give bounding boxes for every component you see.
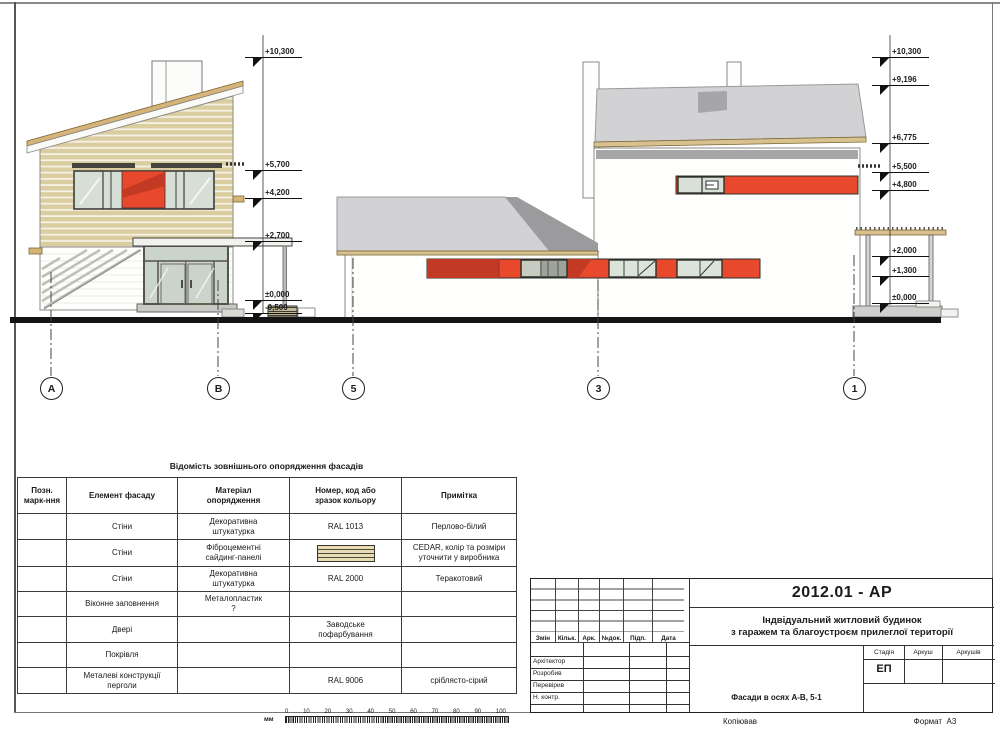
col-header: Номер, код або зразок кольору <box>290 478 402 514</box>
axis-bubble-b: В <box>207 377 230 400</box>
stage-header: Стадія <box>864 649 904 656</box>
elevation-line <box>872 85 929 86</box>
elevation-line <box>872 143 929 144</box>
cell-material: Фіброцементні сайдинг-панелі <box>178 540 290 567</box>
cell-code <box>290 592 402 617</box>
axis-bubble-a: А <box>40 377 63 400</box>
cell-code: RAL 1013 <box>290 514 402 540</box>
eave-shadow <box>596 150 858 159</box>
axis-label: В <box>215 383 223 395</box>
elevation-label: +10,300 <box>892 47 921 56</box>
revision-header-label: Змін <box>531 635 555 642</box>
elevation-label: ±0,000 <box>265 290 289 299</box>
cell-material <box>178 617 290 643</box>
table-row: Двері Заводське пофарбування <box>18 617 517 643</box>
cell-mark <box>18 592 67 617</box>
cell-material: Металопластик ? <box>178 592 290 617</box>
revision-header-label: Арк. <box>579 635 599 642</box>
elevation-label: +9,196 <box>892 75 917 84</box>
revision-column: №док. <box>600 579 624 643</box>
elevation-arrow-icon <box>880 143 890 153</box>
elevation-label: +2,700 <box>265 231 290 240</box>
elevation-line <box>872 190 929 191</box>
table-row: Металеві конструкції перголи RAL 9006 ср… <box>18 668 517 694</box>
elevation-arrow-icon <box>253 57 263 67</box>
pergola-post <box>929 235 933 308</box>
format-label: Формат А3 <box>890 717 980 726</box>
project-name-line1: Індвідуальний житловий будинок <box>690 615 994 627</box>
cell-element: Стіни <box>67 514 178 540</box>
tick-label: 50 <box>389 709 396 715</box>
cell-material <box>178 668 290 694</box>
pergola-post <box>866 235 870 308</box>
tick-label: 10 <box>303 709 310 715</box>
elevation-line <box>245 241 302 242</box>
revision-header-label: Підп. <box>624 635 652 642</box>
table-row: Стіни Декоративна штукатурка RAL 2000 Те… <box>18 567 517 592</box>
elevation-arrow-icon <box>880 57 890 67</box>
cell-mark <box>18 514 67 540</box>
project-name-line2: з гаражем та благоустроєм прилеглої тери… <box>690 627 994 639</box>
sheet-name: Фасади в осях А-В, 5-1 <box>690 693 863 702</box>
cell-note: Перлово-білий <box>402 514 517 540</box>
elevation-mark: +9,196 <box>872 74 929 96</box>
elevation-line <box>245 300 302 301</box>
cell-mark <box>18 540 67 567</box>
elevation-mark: +2,000 <box>872 245 929 267</box>
revision-column: Арк. <box>579 579 600 643</box>
siding-color-swatch <box>317 545 375 562</box>
band-window <box>609 260 656 277</box>
col-header: Елемент фасаду <box>67 478 178 514</box>
step <box>222 309 244 317</box>
tick-label: 60 <box>410 709 417 715</box>
elevation-mark: +4,200 <box>245 187 302 209</box>
tick-label: 0 <box>285 709 288 715</box>
axis-bubble-5: 5 <box>342 377 365 400</box>
tall-wing-wall <box>594 148 860 318</box>
role-label: Перевірив <box>533 682 564 689</box>
elevation-line <box>245 198 302 199</box>
elevation-line <box>245 170 302 171</box>
elevation-mark: -0,500 <box>245 302 302 324</box>
elevation-arrow-icon <box>253 170 263 180</box>
axis-label: 3 <box>596 383 602 395</box>
doc-code: 2012.01 - АР <box>792 584 892 602</box>
cell-material: Декоративна штукатурка <box>178 567 290 592</box>
elevation-mark: +10,300 <box>245 46 302 68</box>
copied-label: Копіював <box>700 717 780 726</box>
elevation-mark: +5,700 <box>245 159 302 181</box>
cell-note <box>402 592 517 617</box>
revision-column: Змін <box>531 579 556 643</box>
beam-stub <box>233 196 244 202</box>
cell-mark <box>18 668 67 694</box>
revision-header-label: №док. <box>600 635 623 642</box>
elevation-label: -0,500 <box>265 303 288 312</box>
garage-roof-fascia <box>337 251 598 255</box>
tick-label: 40 <box>367 709 374 715</box>
tick-label: 70 <box>432 709 439 715</box>
elevation-arrow-icon <box>880 303 890 313</box>
elevation-mark: ±0,000 <box>872 292 929 314</box>
roof-shadow-patch <box>698 91 727 113</box>
role-label: Архітектор <box>533 658 565 665</box>
axis-label: А <box>48 383 56 395</box>
axis-label: 5 <box>351 383 357 395</box>
cell-mark <box>18 617 67 643</box>
axis-bubble-3: 3 <box>587 377 610 400</box>
cell-mark <box>18 643 67 668</box>
elevation-label: +5,500 <box>892 162 917 171</box>
pergola-beam <box>855 230 946 235</box>
elevation-line <box>872 256 929 257</box>
elevation-arrow-icon <box>880 85 890 95</box>
cell-note <box>402 617 517 643</box>
revision-column: Кільк. <box>556 579 579 643</box>
roles-grid: Архітектор Розробив Перевірив Н. контр. <box>531 643 689 712</box>
ground-line <box>10 317 941 323</box>
cell-mark <box>18 567 67 592</box>
elevation-line <box>245 57 302 58</box>
cell-element: Віконне заповнення <box>67 592 178 617</box>
revision-header-label: Кільк. <box>556 635 578 642</box>
stage-value: ЕП <box>864 663 904 675</box>
elevation-line <box>872 172 929 173</box>
elevation-label: +1,300 <box>892 266 917 275</box>
scale-ruler <box>285 716 509 723</box>
louver <box>72 163 135 168</box>
revision-column: Дата <box>653 579 684 643</box>
elevation-arrow-icon <box>253 313 263 323</box>
tall-roof <box>595 84 866 142</box>
project-name-cell: Індвідуальний житловий будинок з гаражем… <box>689 608 994 646</box>
tick-label: 80 <box>453 709 460 715</box>
title-block: Змін Кільк. Арк. №док. Підп. Дата Архіте… <box>530 578 993 713</box>
tick-label: 30 <box>346 709 353 715</box>
cell-element: Стіни <box>67 567 178 592</box>
elevation-mark: +4,800 <box>872 179 929 201</box>
elevation-mark: +1,300 <box>872 265 929 287</box>
tick-label: 90 <box>474 709 481 715</box>
cell-material: Декоративна штукатурка <box>178 514 290 540</box>
table-row: Стіни Фіброцементні сайдинг-панелі CEDAR… <box>18 540 517 567</box>
cell-element: Двері <box>67 617 178 643</box>
right-facade <box>337 62 958 318</box>
col-header: Матеріал опорядження <box>178 478 290 514</box>
format-value: А3 <box>947 717 957 726</box>
cell-element: Стіни <box>67 540 178 567</box>
cell-material <box>178 643 290 668</box>
axis-bubble-1: 1 <box>843 377 866 400</box>
elevation-line <box>245 313 302 314</box>
tick-label: 100 <box>496 709 506 715</box>
elevation-label: +4,200 <box>265 188 290 197</box>
cell-note: Теракотовий <box>402 567 517 592</box>
table-row: Стіни Декоративна штукатурка RAL 1013 Пе… <box>18 514 517 540</box>
col-header: Позн. марк-ння <box>18 478 67 514</box>
elevation-line <box>872 276 929 277</box>
doc-code-cell: 2012.01 - АР <box>689 579 994 608</box>
cell-code: RAL 2000 <box>290 567 402 592</box>
table-row: Віконне заповнення Металопластик ? <box>18 592 517 617</box>
scale-numbers: 0 10 20 30 40 50 60 70 80 90 100 <box>285 709 506 715</box>
revision-header-label: Дата <box>653 635 684 642</box>
cell-code <box>290 643 402 668</box>
elevation-mark: +10,300 <box>872 46 929 68</box>
col-header: Примітка <box>402 478 517 514</box>
cell-element: Металеві конструкції перголи <box>67 668 178 694</box>
role-label: Н. контр. <box>533 694 560 701</box>
elevation-arrow-icon <box>253 198 263 208</box>
revision-column: Підп. <box>624 579 653 643</box>
elevation-label: +4,800 <box>892 180 917 189</box>
drawing-sheet: { "sheet": { "copied_label": "Копіював",… <box>0 0 1000 732</box>
stage-table: Стадія Аркуш Аркушів ЕП <box>863 646 994 712</box>
cell-note: CEDAR, колір та розміри уточнити у вироб… <box>402 540 517 567</box>
elevation-arrow-icon <box>880 190 890 200</box>
elevation-line <box>872 57 929 58</box>
tick-label: 20 <box>325 709 332 715</box>
elevation-label: +5,700 <box>265 160 290 169</box>
cell-code: Заводське пофарбування <box>290 617 402 643</box>
sheet-name-cell: Фасади в осях А-В, 5-1 <box>689 646 863 712</box>
elevation-mark: +6,775 <box>872 132 929 154</box>
finish-table: Позн. марк-ння Елемент фасаду Матеріал о… <box>17 477 517 694</box>
elevation-label: ±0,000 <box>892 293 916 302</box>
elevation-line <box>872 303 929 304</box>
band-shade <box>427 259 499 278</box>
beam-stub <box>29 248 42 254</box>
role-label: Розробив <box>533 670 562 677</box>
elevation-mark: +2,700 <box>245 230 302 252</box>
elevation-label: +2,000 <box>892 246 917 255</box>
scale-unit: мм <box>264 716 274 723</box>
cell-note: сріблясто-сірий <box>402 668 517 694</box>
cell-code: RAL 9006 <box>290 668 402 694</box>
elevation-label: +6,775 <box>892 133 917 142</box>
elevation-arrow-icon <box>253 241 263 251</box>
elevation-label: +10,300 <box>265 47 294 56</box>
table-row: Покрівля <box>18 643 517 668</box>
finish-table-title: Відомість зовнішнього опорядження фасаді… <box>17 461 516 471</box>
sheets-header: Аркушів <box>942 649 995 656</box>
finish-table-header-row: Позн. марк-ння Елемент фасаду Матеріал о… <box>18 478 517 514</box>
cell-element: Покрівля <box>67 643 178 668</box>
sheet-header: Аркуш <box>904 649 942 656</box>
revision-grid: Змін Кільк. Арк. №док. Підп. Дата <box>531 579 689 643</box>
cell-note <box>402 643 517 668</box>
axis-label: 1 <box>852 383 858 395</box>
cell-code <box>290 540 402 567</box>
elevation-arrow-icon <box>880 276 890 286</box>
format-word: Формат <box>914 717 942 726</box>
louver <box>151 163 222 168</box>
